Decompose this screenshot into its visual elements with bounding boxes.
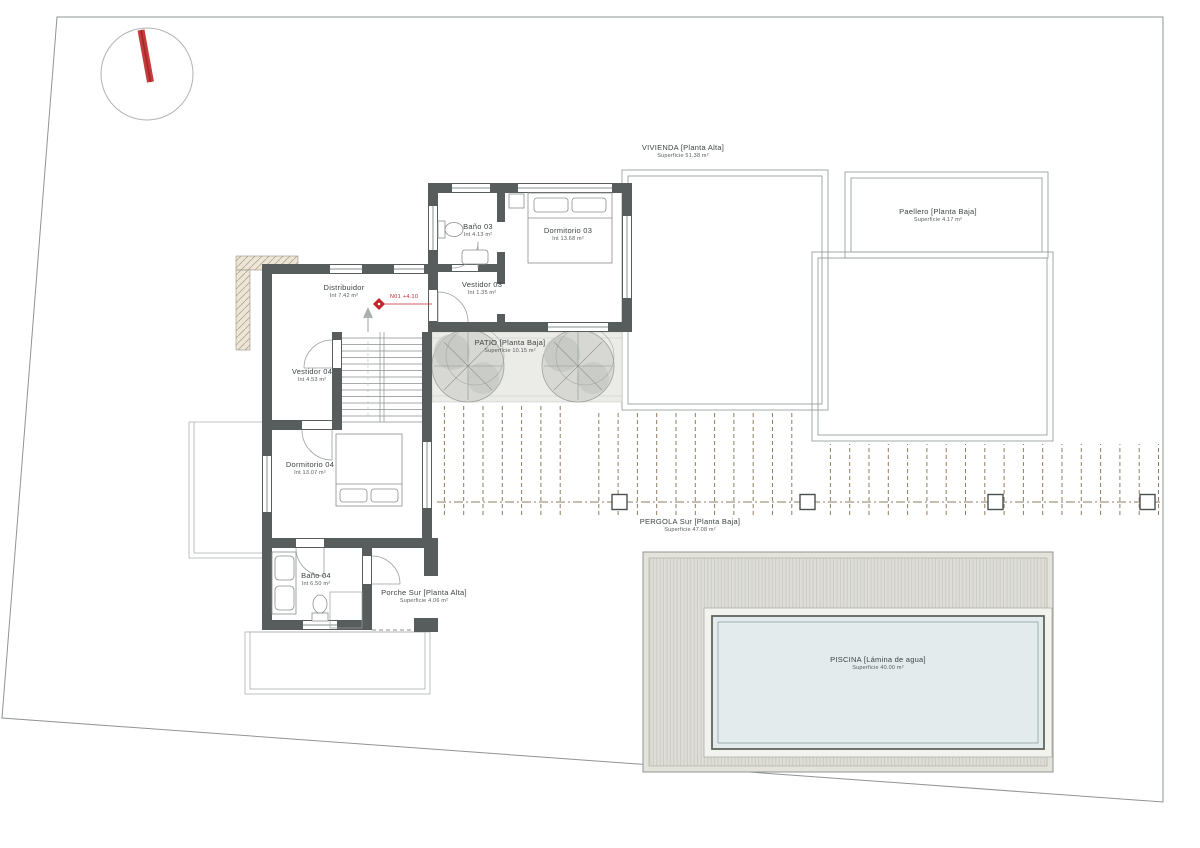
toilet-icon	[312, 595, 328, 621]
bed-icon	[509, 193, 612, 263]
floor-plan: VIVIENDA [Planta Alta] Superficie 51.38 …	[0, 0, 1200, 848]
sink-icon	[462, 250, 488, 264]
roof-outline-vivienda	[622, 170, 828, 410]
roof-outline-planta-baja	[812, 252, 1053, 441]
roof-outline-paellero	[845, 172, 1048, 258]
vanity-sinks-icon	[272, 552, 296, 614]
stairs-up-arrow-icon	[363, 307, 373, 332]
bed-icon	[336, 434, 402, 506]
pool	[704, 608, 1052, 757]
level-marker-icon	[373, 298, 432, 310]
floor-plan-drawing	[0, 0, 1200, 848]
toilet-icon	[438, 221, 463, 238]
staircase	[342, 332, 422, 422]
north-arrow-icon	[101, 28, 193, 120]
pergola-structure	[437, 403, 1160, 516]
